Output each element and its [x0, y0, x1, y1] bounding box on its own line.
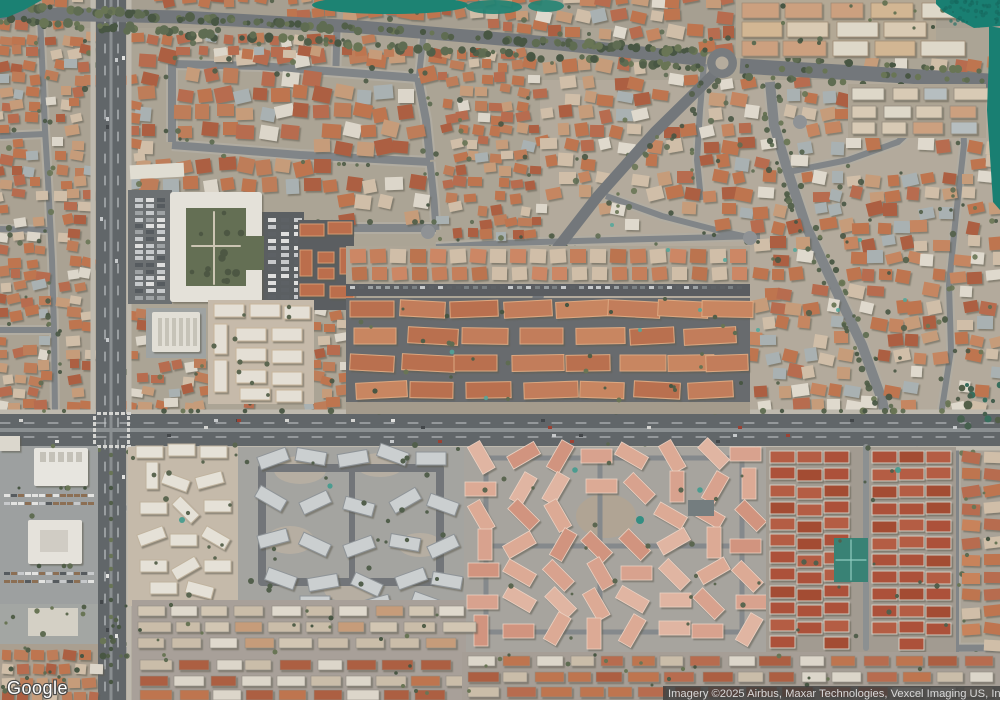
svg-text:Google: Google — [7, 678, 68, 698]
svg-text:Imagery ©2025 Airbus, Maxar Te: Imagery ©2025 Airbus, Maxar Technologies… — [668, 688, 1000, 700]
